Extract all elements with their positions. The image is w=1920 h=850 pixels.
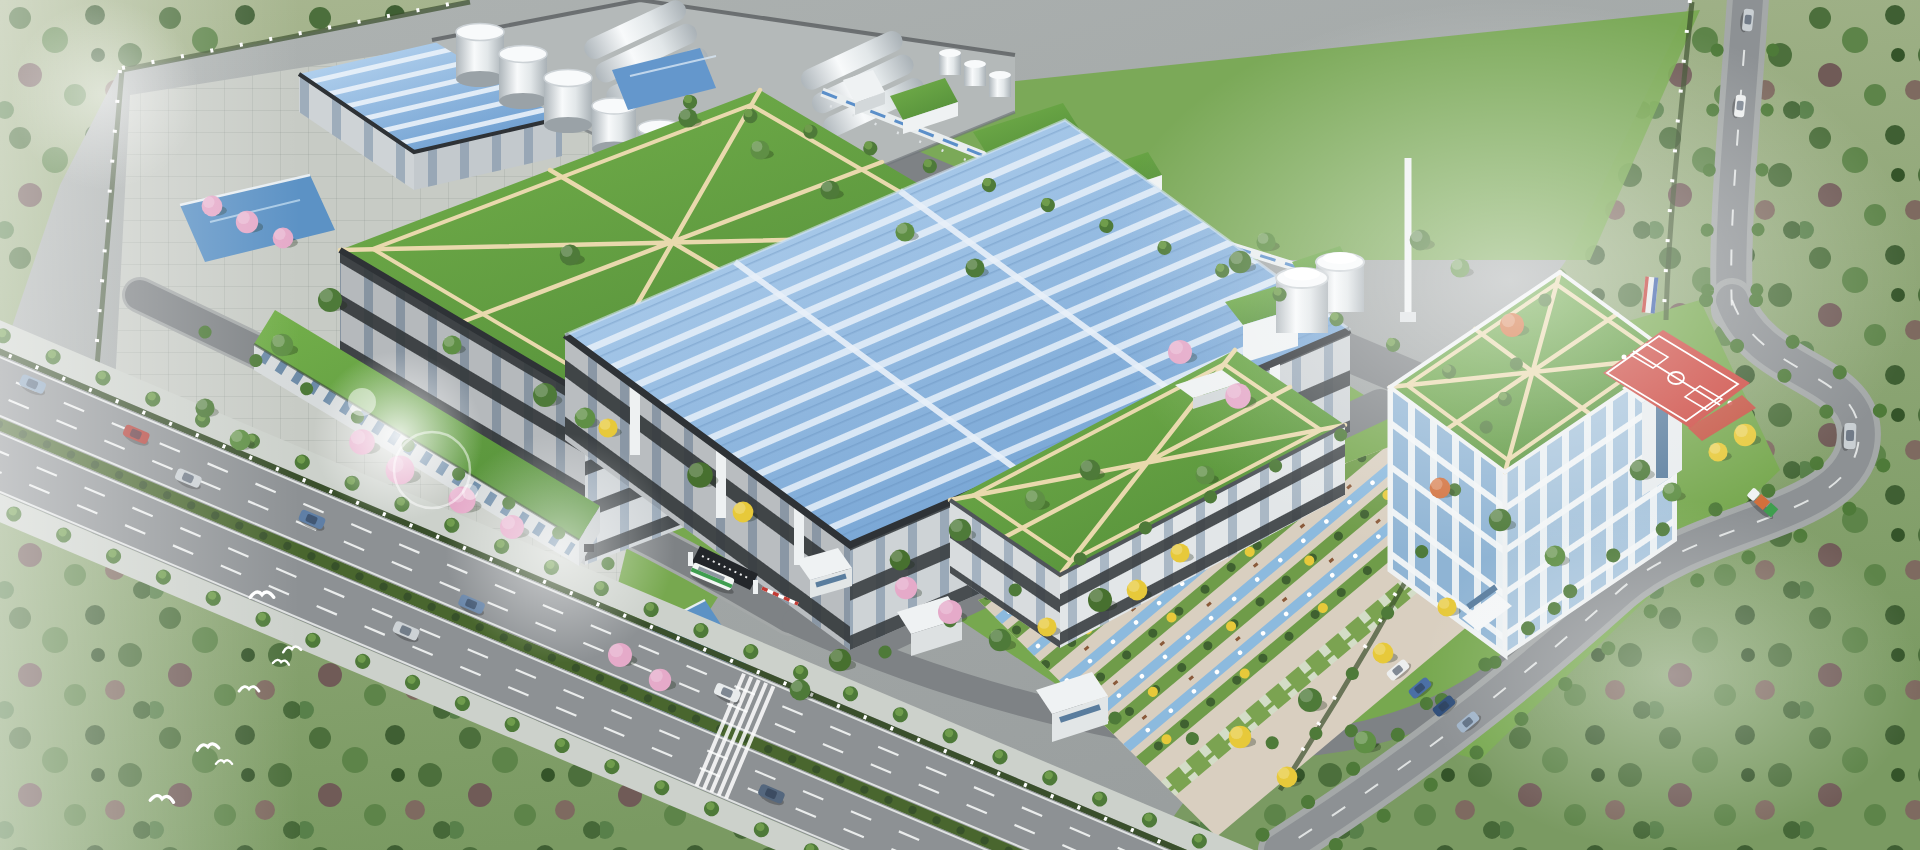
industrial-park-scene xyxy=(0,0,1920,850)
haze-bottom-right xyxy=(1420,500,1920,850)
lens-flare xyxy=(445,433,675,663)
lens-flare xyxy=(313,351,483,521)
haze-top-left xyxy=(10,0,200,190)
haze-top-right xyxy=(1100,0,1920,560)
aerial-rendering-can xyxy=(0,0,1920,850)
